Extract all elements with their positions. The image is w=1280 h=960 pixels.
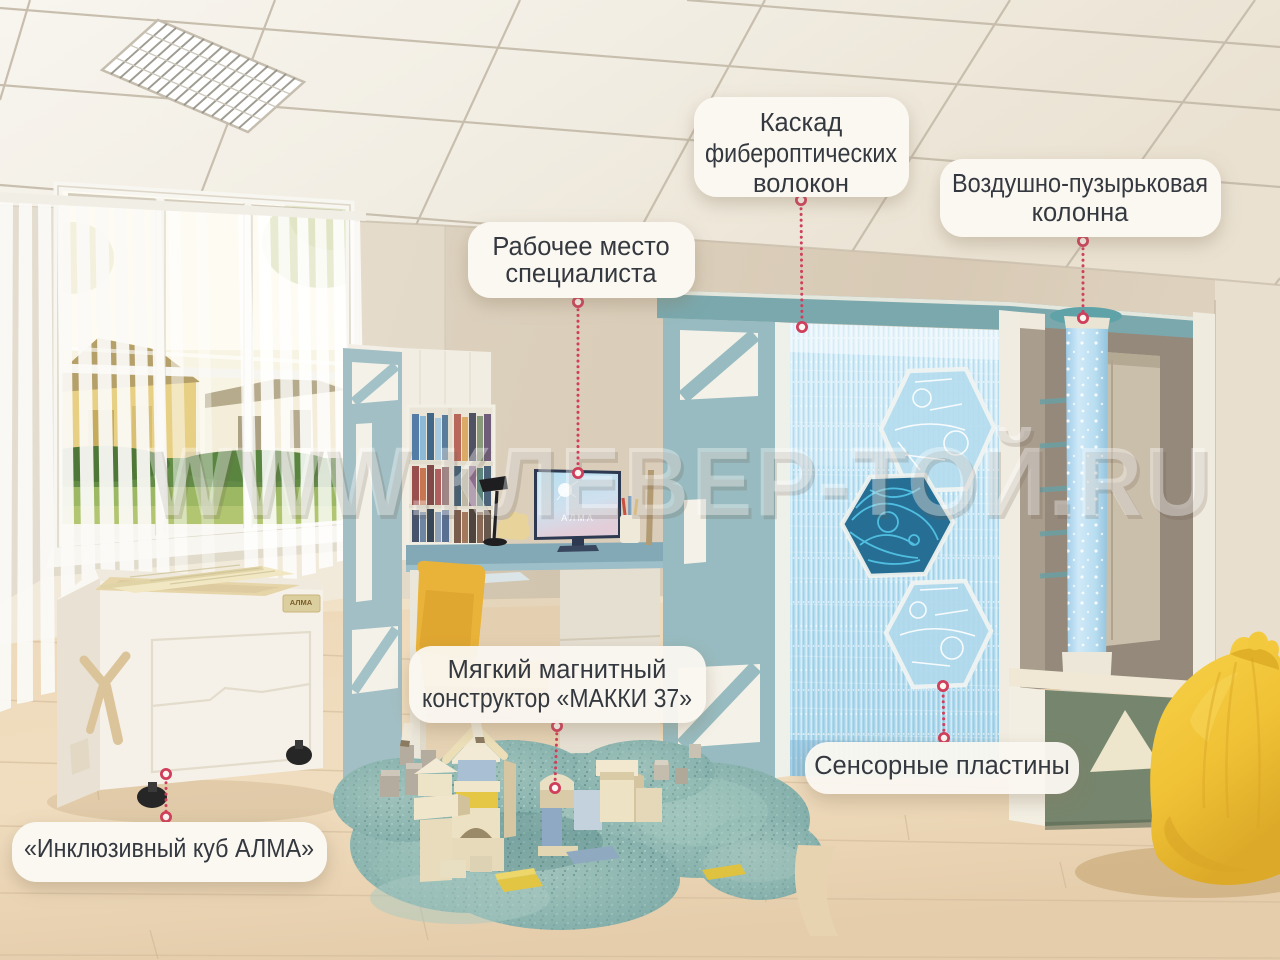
svg-text:Рабочее место: Рабочее место (492, 233, 669, 261)
svg-text:фибероптических: фибероптических (705, 140, 897, 168)
svg-text:конструктор «МАККИ 37»: конструктор «МАККИ 37» (422, 685, 692, 713)
svg-text:«Инклюзивный куб АЛМА»: «Инклюзивный куб АЛМА» (24, 835, 314, 863)
svg-text:Воздушно-пузырьковая: Воздушно-пузырьковая (952, 170, 1208, 198)
svg-text:Каскад: Каскад (760, 109, 843, 137)
svg-text:колонна: колонна (1032, 199, 1130, 227)
svg-text:WWW.КЛЕВЕР-ТОЙ.RU: WWW.КЛЕВЕР-ТОЙ.RU (147, 427, 1213, 536)
svg-text:волокон: волокон (753, 170, 849, 198)
svg-text:АЛМА: АЛМА (290, 598, 313, 607)
svg-text:Мягкий магнитный: Мягкий магнитный (448, 656, 667, 684)
svg-text:специалиста: специалиста (505, 260, 657, 288)
svg-text:Сенсорные пластины: Сенсорные пластины (814, 752, 1070, 780)
